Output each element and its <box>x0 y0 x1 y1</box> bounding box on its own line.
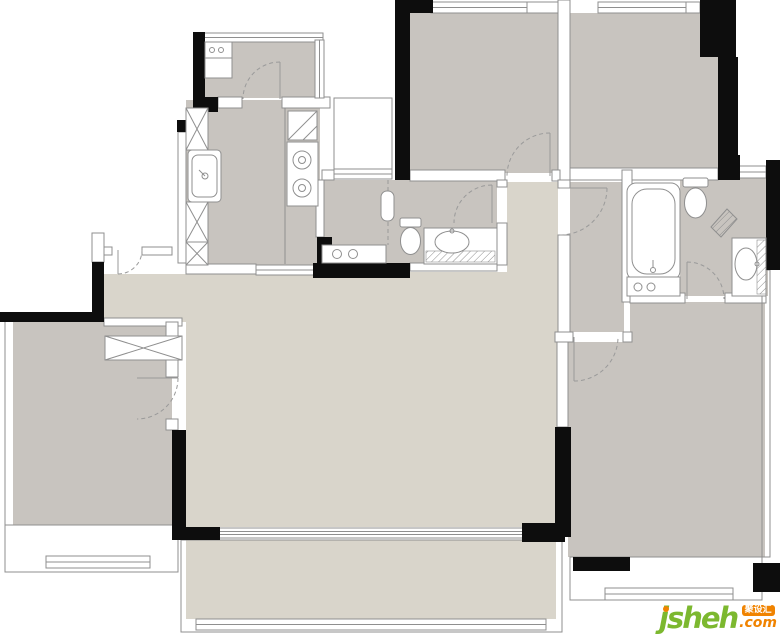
wall <box>527 2 560 13</box>
wall <box>313 263 410 278</box>
wall <box>558 180 570 188</box>
wall <box>395 0 433 13</box>
window <box>46 556 150 568</box>
vanity-sink <box>424 228 497 264</box>
entry-nook-floor <box>104 274 186 322</box>
pass-through-window <box>256 265 314 275</box>
wall <box>172 430 186 537</box>
window <box>738 166 766 178</box>
window <box>431 2 527 13</box>
window <box>315 40 324 98</box>
kitchen-sink <box>188 150 221 202</box>
wall <box>766 160 780 270</box>
wardrobe-cabinet <box>105 336 182 360</box>
wall <box>558 235 570 332</box>
wall <box>573 557 630 571</box>
bathtub <box>627 183 680 280</box>
sliding-door <box>218 528 524 538</box>
window <box>203 33 323 42</box>
door-entry <box>118 250 142 274</box>
toilet <box>400 218 421 255</box>
watermark-j-dot <box>663 606 669 612</box>
wall <box>497 223 507 265</box>
wall <box>718 155 740 180</box>
watermark: jsheh 聚设汇 .com <box>659 603 777 633</box>
wall <box>497 180 507 187</box>
watermark-brand: jsheh <box>659 603 737 633</box>
wall <box>218 97 242 108</box>
laundry-counter <box>322 245 386 263</box>
wall <box>172 527 220 540</box>
floor-plan-canvas: jsheh 聚设汇 .com <box>0 0 780 634</box>
watermark-column: 聚设汇 .com <box>739 605 777 631</box>
washing-machine <box>205 42 232 78</box>
room-bedroom-top-center <box>410 13 558 173</box>
wall <box>700 0 736 57</box>
wall <box>623 332 632 342</box>
wall <box>686 2 700 13</box>
wall <box>0 312 104 322</box>
room-bedroom-top-right <box>570 13 718 170</box>
wall <box>558 0 570 180</box>
balcony-railing <box>196 619 546 630</box>
wall <box>178 132 186 263</box>
window <box>334 169 392 179</box>
tub-deck <box>627 277 680 296</box>
watermark-tld: .com <box>739 616 777 631</box>
wall <box>166 419 178 430</box>
room-living-dining <box>186 272 558 527</box>
window <box>598 2 686 13</box>
room-master-vestibule <box>570 182 624 332</box>
wall <box>555 427 571 537</box>
wall <box>322 170 334 180</box>
wall <box>410 170 505 181</box>
wall <box>555 332 573 342</box>
gas-stove <box>287 142 318 206</box>
refrigerator <box>288 111 317 140</box>
floor-plan <box>0 0 780 634</box>
room-bedroom-master <box>568 302 765 557</box>
room-balcony <box>186 540 556 619</box>
vanity-sink <box>732 238 766 296</box>
wall <box>718 57 738 167</box>
hallway-floor <box>507 182 558 274</box>
wall <box>104 247 112 255</box>
wall <box>557 342 568 427</box>
toilet <box>683 178 708 218</box>
light-shaft <box>334 98 392 169</box>
wall <box>92 233 104 262</box>
window <box>605 588 733 600</box>
wall <box>395 0 410 180</box>
wall <box>282 97 330 108</box>
wall <box>753 563 780 592</box>
wall <box>552 170 560 181</box>
wall <box>142 247 172 255</box>
